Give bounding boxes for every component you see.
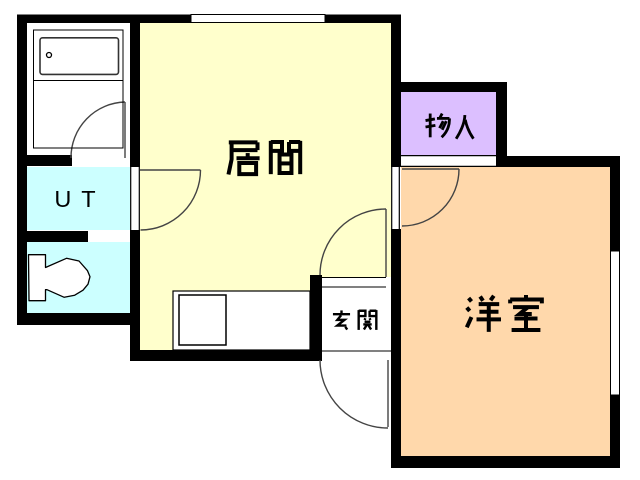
svg-text:UT: UT: [54, 186, 105, 212]
